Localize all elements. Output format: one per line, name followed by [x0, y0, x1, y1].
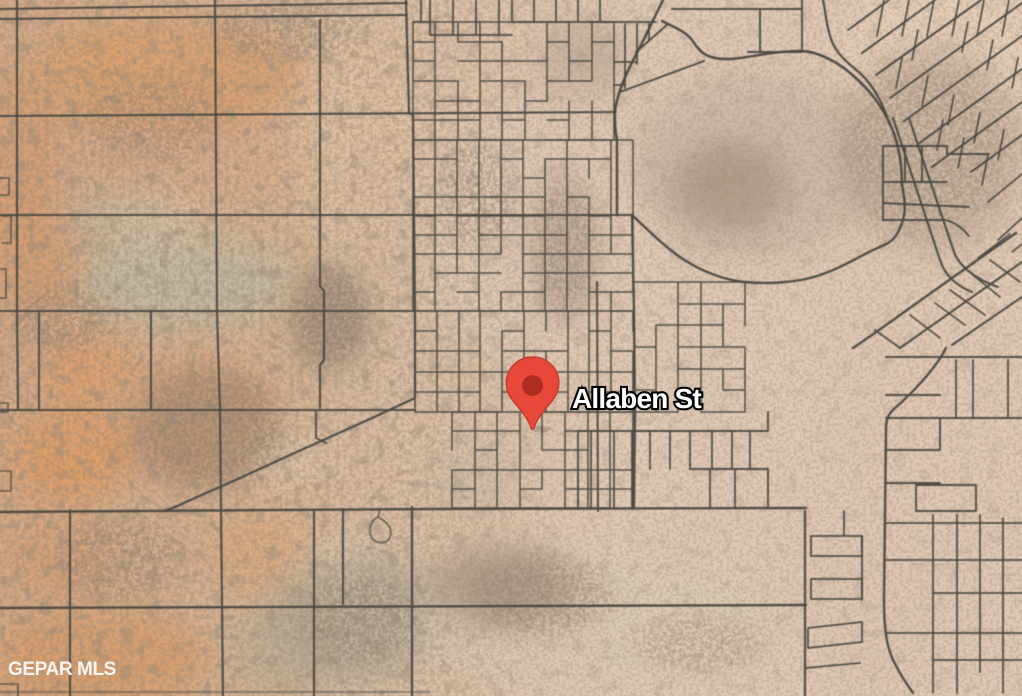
svg-text:Allaben St: Allaben St: [572, 383, 701, 414]
svg-text:GEPAR MLS: GEPAR MLS: [8, 659, 116, 680]
